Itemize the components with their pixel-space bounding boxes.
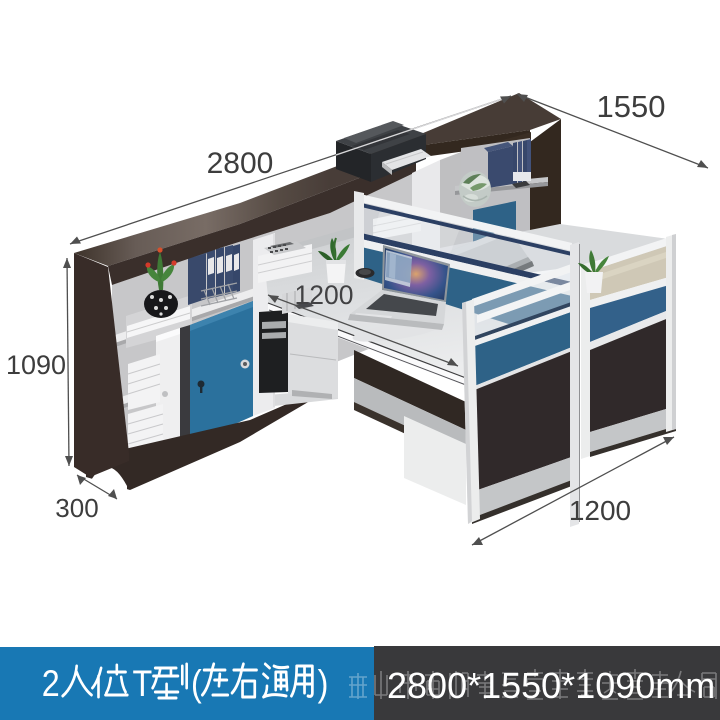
svg-text:1550: 1550 [597, 89, 666, 124]
svg-text:2800*1550*1090mm: 2800*1550*1090mm [387, 665, 715, 706]
svg-text:T: T [133, 664, 153, 704]
svg-text:1200: 1200 [569, 495, 631, 526]
svg-text:300: 300 [55, 493, 98, 523]
svg-text:1090: 1090 [6, 350, 66, 380]
svg-text:2: 2 [42, 664, 60, 704]
svg-text:1200: 1200 [295, 280, 354, 310]
svg-text:2800: 2800 [207, 147, 274, 180]
svg-text:): ) [318, 664, 329, 704]
svg-text:(: ( [191, 664, 202, 704]
